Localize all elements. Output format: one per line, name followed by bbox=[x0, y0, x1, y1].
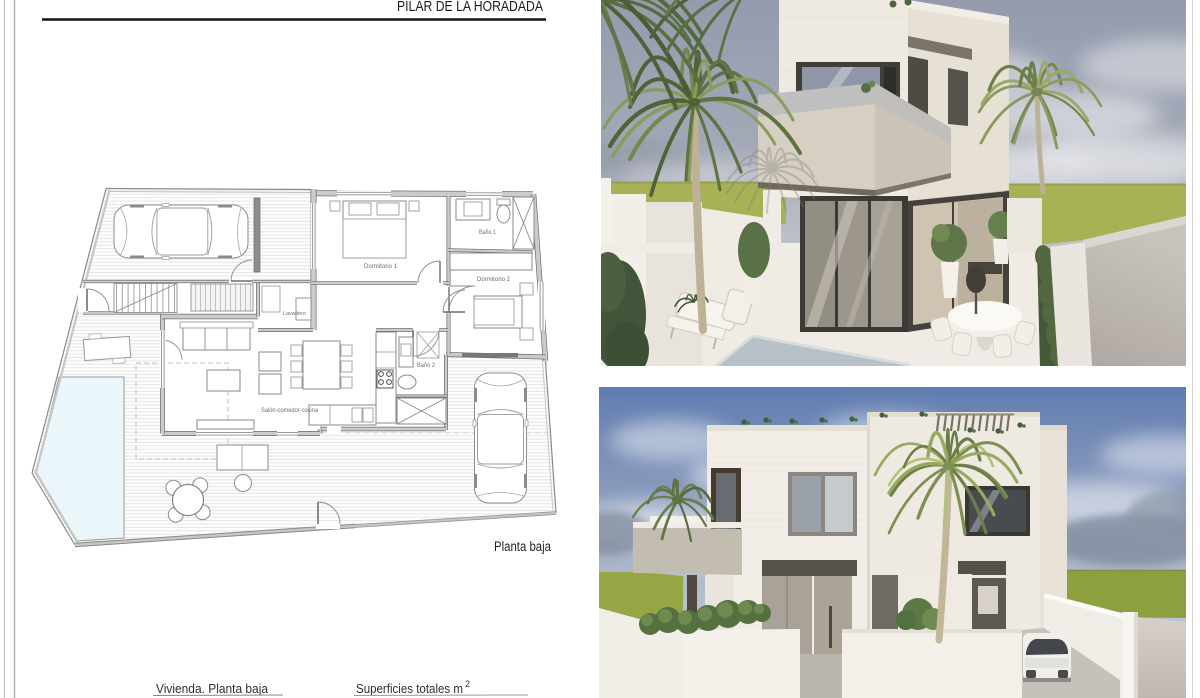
svg-text:Baño 2: Baño 2 bbox=[417, 363, 436, 369]
svg-text:Vivienda. Planta baja: Vivienda. Planta baja bbox=[156, 681, 269, 696]
svg-text:PILAR DE LA HORADADA: PILAR DE LA HORADADA bbox=[397, 0, 543, 15]
svg-text:Dormitorio 2: Dormitorio 2 bbox=[477, 277, 511, 283]
svg-text:Planta baja: Planta baja bbox=[494, 539, 551, 554]
svg-text:Lavadero: Lavadero bbox=[283, 311, 306, 317]
svg-text:2: 2 bbox=[465, 679, 470, 689]
svg-text:Salón-comedor-cocina: Salón-comedor-cocina bbox=[261, 408, 319, 414]
svg-text:Baño 1: Baño 1 bbox=[479, 230, 497, 236]
svg-text:Dormitorio 1: Dormitorio 1 bbox=[364, 264, 398, 270]
svg-text:Superficies totales m: Superficies totales m bbox=[356, 681, 463, 696]
